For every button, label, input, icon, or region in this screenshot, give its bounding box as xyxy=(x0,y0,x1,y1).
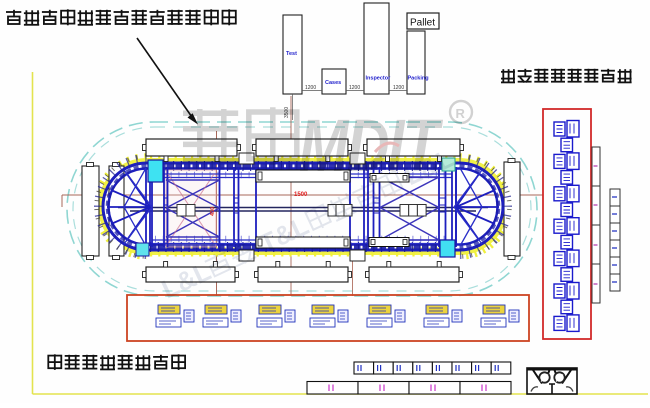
svg-text:Test: Test xyxy=(286,51,297,57)
svg-text:1200: 1200 xyxy=(305,85,316,91)
svg-text:1200: 1200 xyxy=(393,85,404,91)
svg-text:Packing: Packing xyxy=(408,76,429,82)
svg-text:Inspector: Inspector xyxy=(366,76,392,82)
svg-text:Pallet: Pallet xyxy=(410,18,435,29)
svg-text:Cases: Cases xyxy=(325,80,341,86)
svg-text:1500: 1500 xyxy=(294,192,308,198)
svg-text:450: 450 xyxy=(210,207,216,216)
svg-text:R: R xyxy=(456,106,466,121)
svg-text:1200: 1200 xyxy=(349,85,360,91)
